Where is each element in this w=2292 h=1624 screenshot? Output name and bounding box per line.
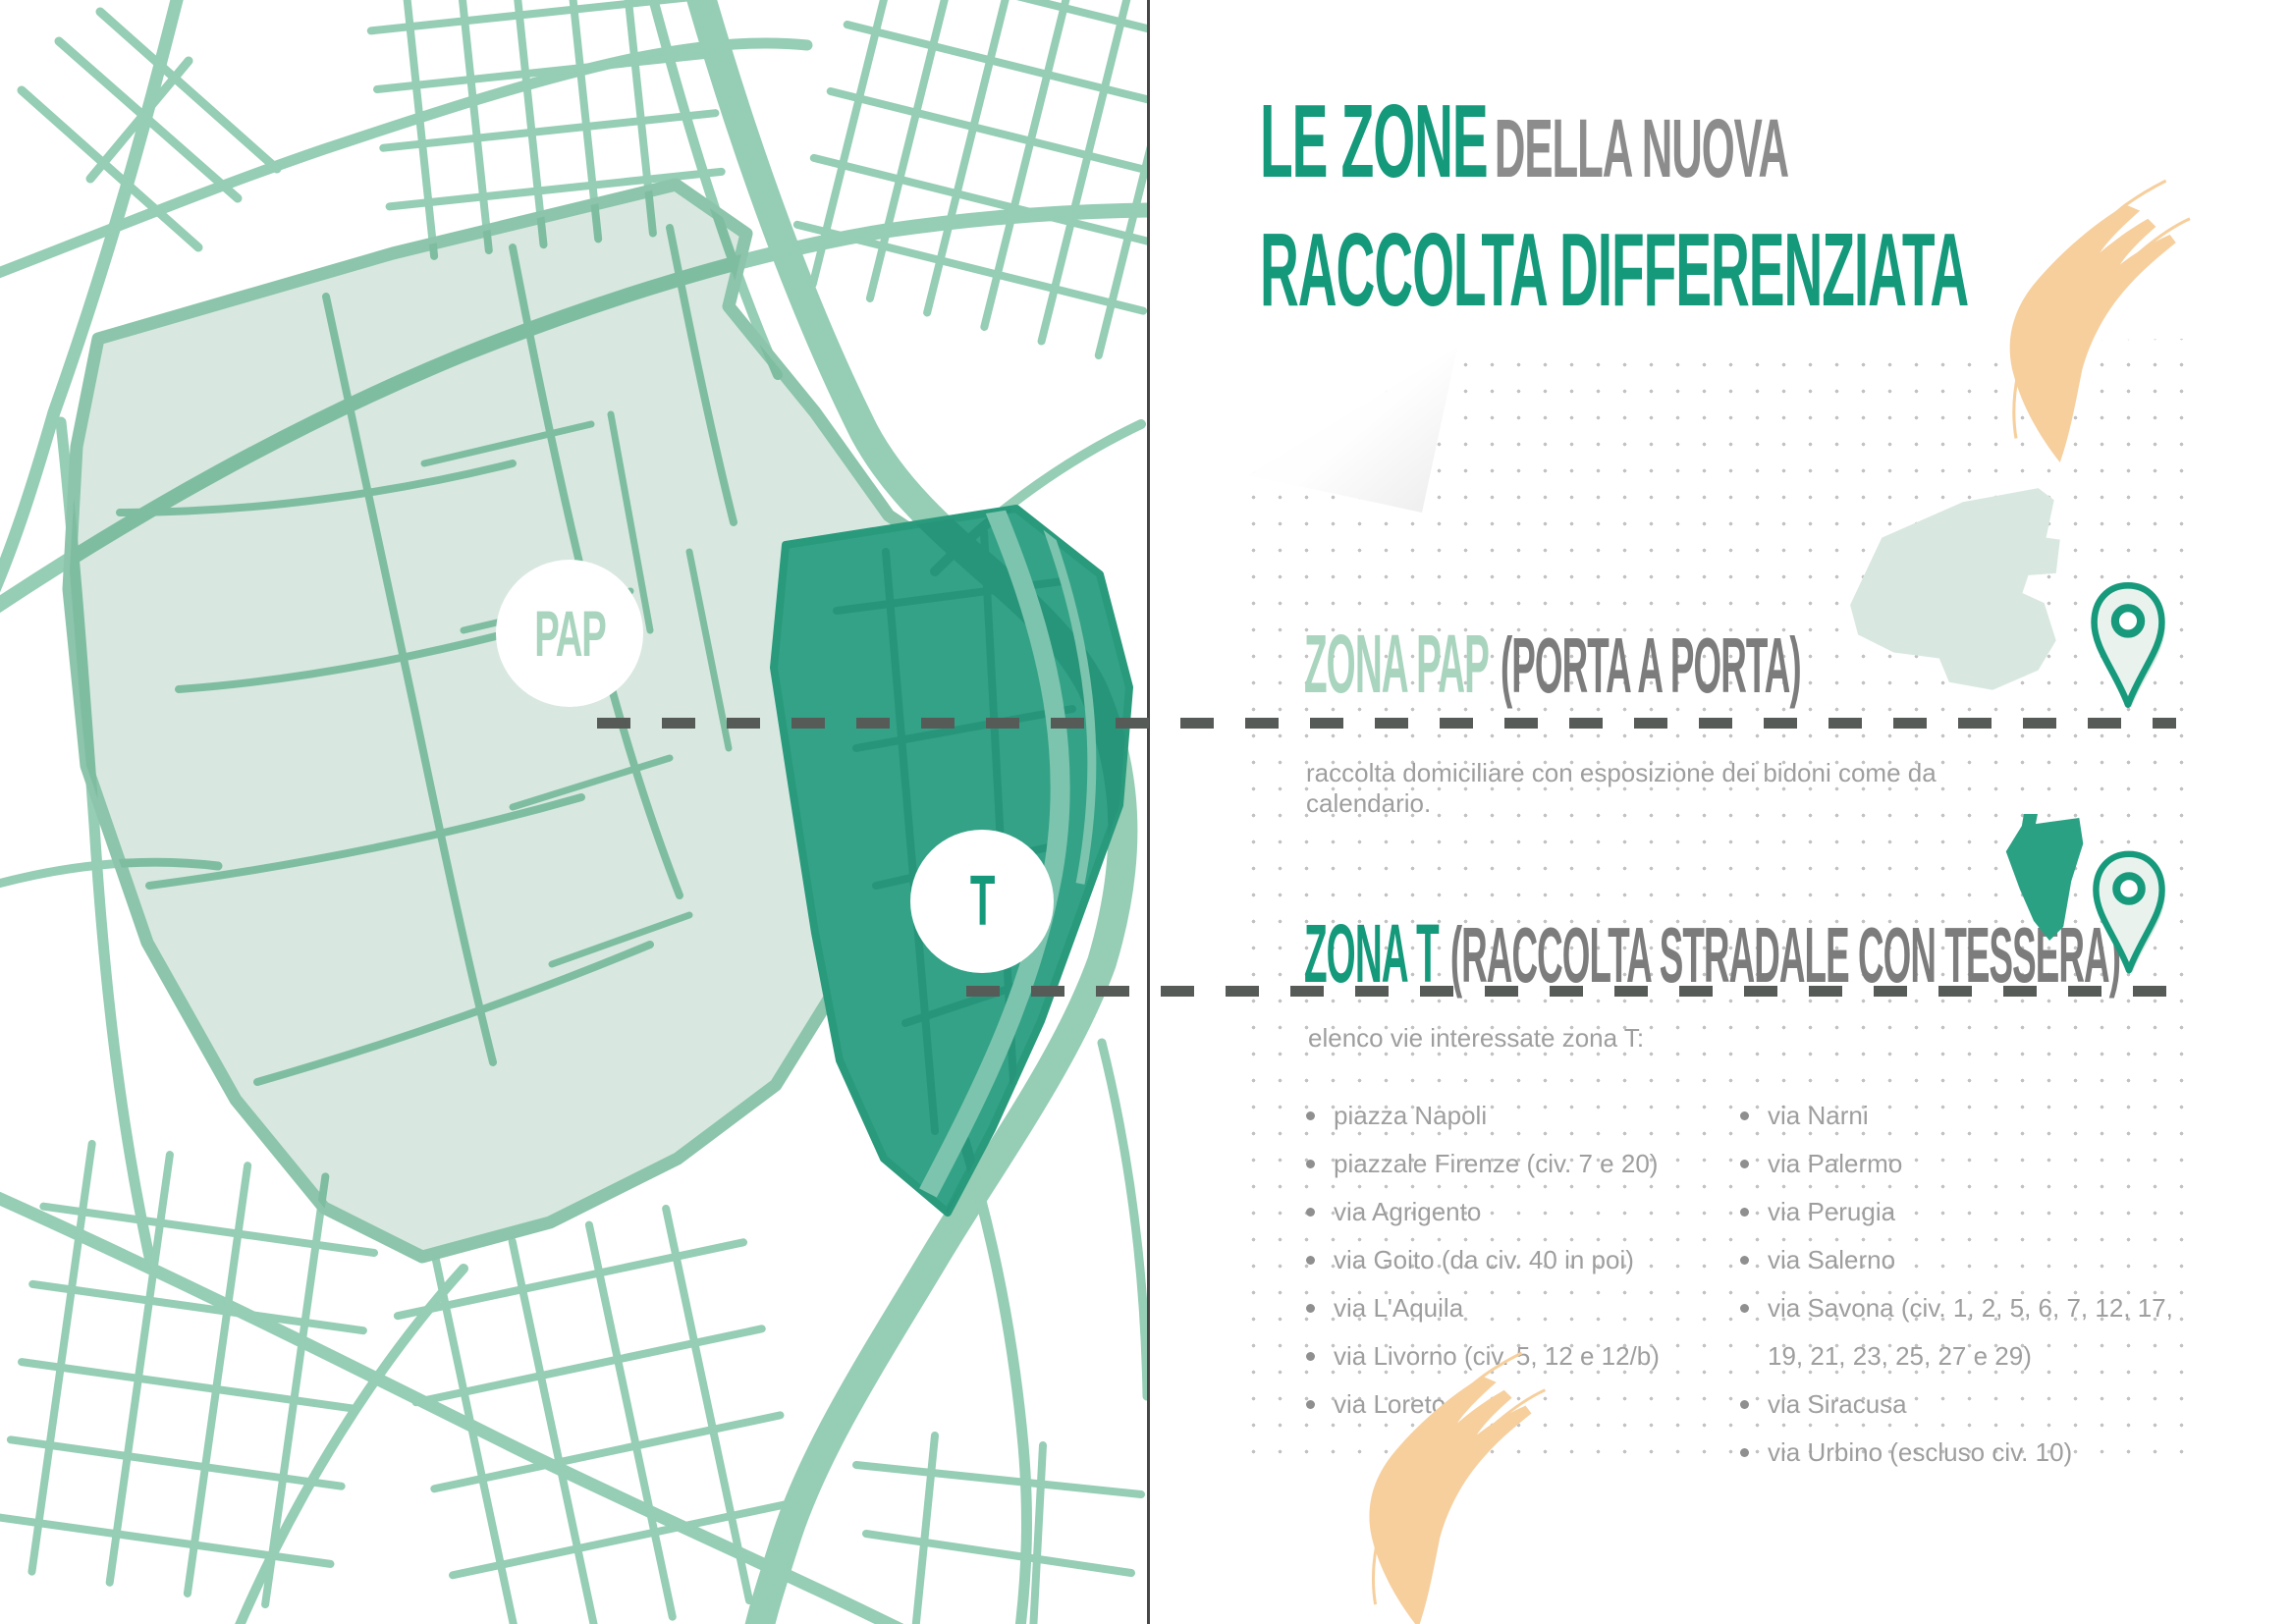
bullet-icon [1306,1400,1315,1409]
street-list-item: via Perugia [1734,1188,2194,1236]
street-list-item: via Savona (civ. 1, 2, 5, 6, 7, 12, 17, … [1734,1284,2194,1380]
bullet-icon [1740,1111,1749,1120]
street-name: via Narni [1768,1101,1869,1130]
zone-t-connector-line [966,986,2176,997]
vertical-divider [1147,0,1150,1624]
street-list-item: via Narni [1734,1092,2194,1140]
street-list-item: via Siracusa [1734,1380,2194,1429]
infographic-page: PAP T LE ZONEDELLA NUOVA RACCOLTA DIFFER… [0,0,2292,1624]
zona-pap-heading: ZONA PAP(PORTA A PORTA) [1304,622,1801,706]
title-secondary: DELLA NUOVA [1495,102,1788,194]
street-name: via Savona (civ. 1, 2, 5, 6, 7, 12, 17, … [1768,1293,2173,1371]
street-name: via Salerno [1768,1245,1895,1274]
street-name: via Palermo [1768,1149,1902,1178]
zone-pap-badge-label: PAP [534,596,605,671]
zona-pap-type: (PORTA A PORTA) [1501,622,1801,709]
bullet-icon [1740,1400,1749,1409]
title-line-2: RACCOLTA DIFFERENZIATA [1260,211,1968,330]
street-list-item: via Goito (da civ. 40 in poi) [1300,1236,1722,1284]
bullet-icon [1306,1304,1315,1313]
title-line-1: LE ZONEDELLA NUOVA [1260,82,1968,201]
bullet-icon [1306,1208,1315,1217]
zone-pap-connector-line [597,718,2176,729]
street-name: via Perugia [1768,1197,1895,1226]
hand-illustration [1357,1347,1563,1624]
zone-pap-badge: PAP [496,560,643,707]
zona-pap-name: ZONA PAP [1304,618,1489,710]
street-name: piazza Napoli [1334,1101,1487,1130]
street-name: piazzale Firenze (civ. 7 e 20) [1334,1149,1658,1178]
street-list-item: piazza Napoli [1300,1092,1722,1140]
zone-pap-silhouette [1844,486,2092,696]
city-map [0,0,1149,1624]
street-list-item: via Salerno [1734,1236,2194,1284]
bullet-icon [1306,1256,1315,1265]
street-name: via L'Aquila [1334,1293,1463,1323]
bullet-icon [1740,1160,1749,1168]
street-list-item: piazzale Firenze (civ. 7 e 20) [1300,1140,1722,1188]
bullet-icon [1740,1448,1749,1457]
street-name: via Urbino (escluso civ. 10) [1768,1437,2072,1467]
zone-t-badge: T [910,830,1054,973]
bullet-icon [1740,1304,1749,1313]
street-list-item: via Agrigento [1300,1188,1722,1236]
bullet-icon [1740,1208,1749,1217]
zona-pap-description: raccolta domiciliare con esposizione dei… [1306,758,2052,819]
bullet-icon [1306,1160,1315,1168]
folded-corner-icon [1249,339,1467,521]
note-paper: ZONA PAP(PORTA A PORTA) raccolta domicil… [1249,339,2203,1476]
map-pin-icon [2088,563,2168,728]
street-list-item: via L'Aquila [1300,1284,1722,1332]
map-pin-icon [2090,835,2168,990]
street-list-item: via Palermo [1734,1140,2194,1188]
street-list-item: via Urbino (escluso civ. 10) [1734,1429,2194,1477]
zone-t-badge-label: T [970,861,994,942]
street-name: via Agrigento [1334,1197,1481,1226]
hand-illustration [1997,175,2209,464]
street-name: via Goito (da civ. 40 in poi) [1334,1245,1634,1274]
street-name: via Siracusa [1768,1389,1907,1419]
zone-t-silhouette [1993,810,2086,944]
bullet-icon [1306,1111,1315,1120]
street-list-intro: elenco vie interessate zona T: [1308,1023,1644,1054]
street-list-column-2: via Narnivia Palermovia Perugiavia Saler… [1734,1092,2194,1477]
bullet-icon [1740,1256,1749,1265]
title-highlight: LE ZONE [1260,83,1488,199]
bullet-icon [1306,1352,1315,1361]
